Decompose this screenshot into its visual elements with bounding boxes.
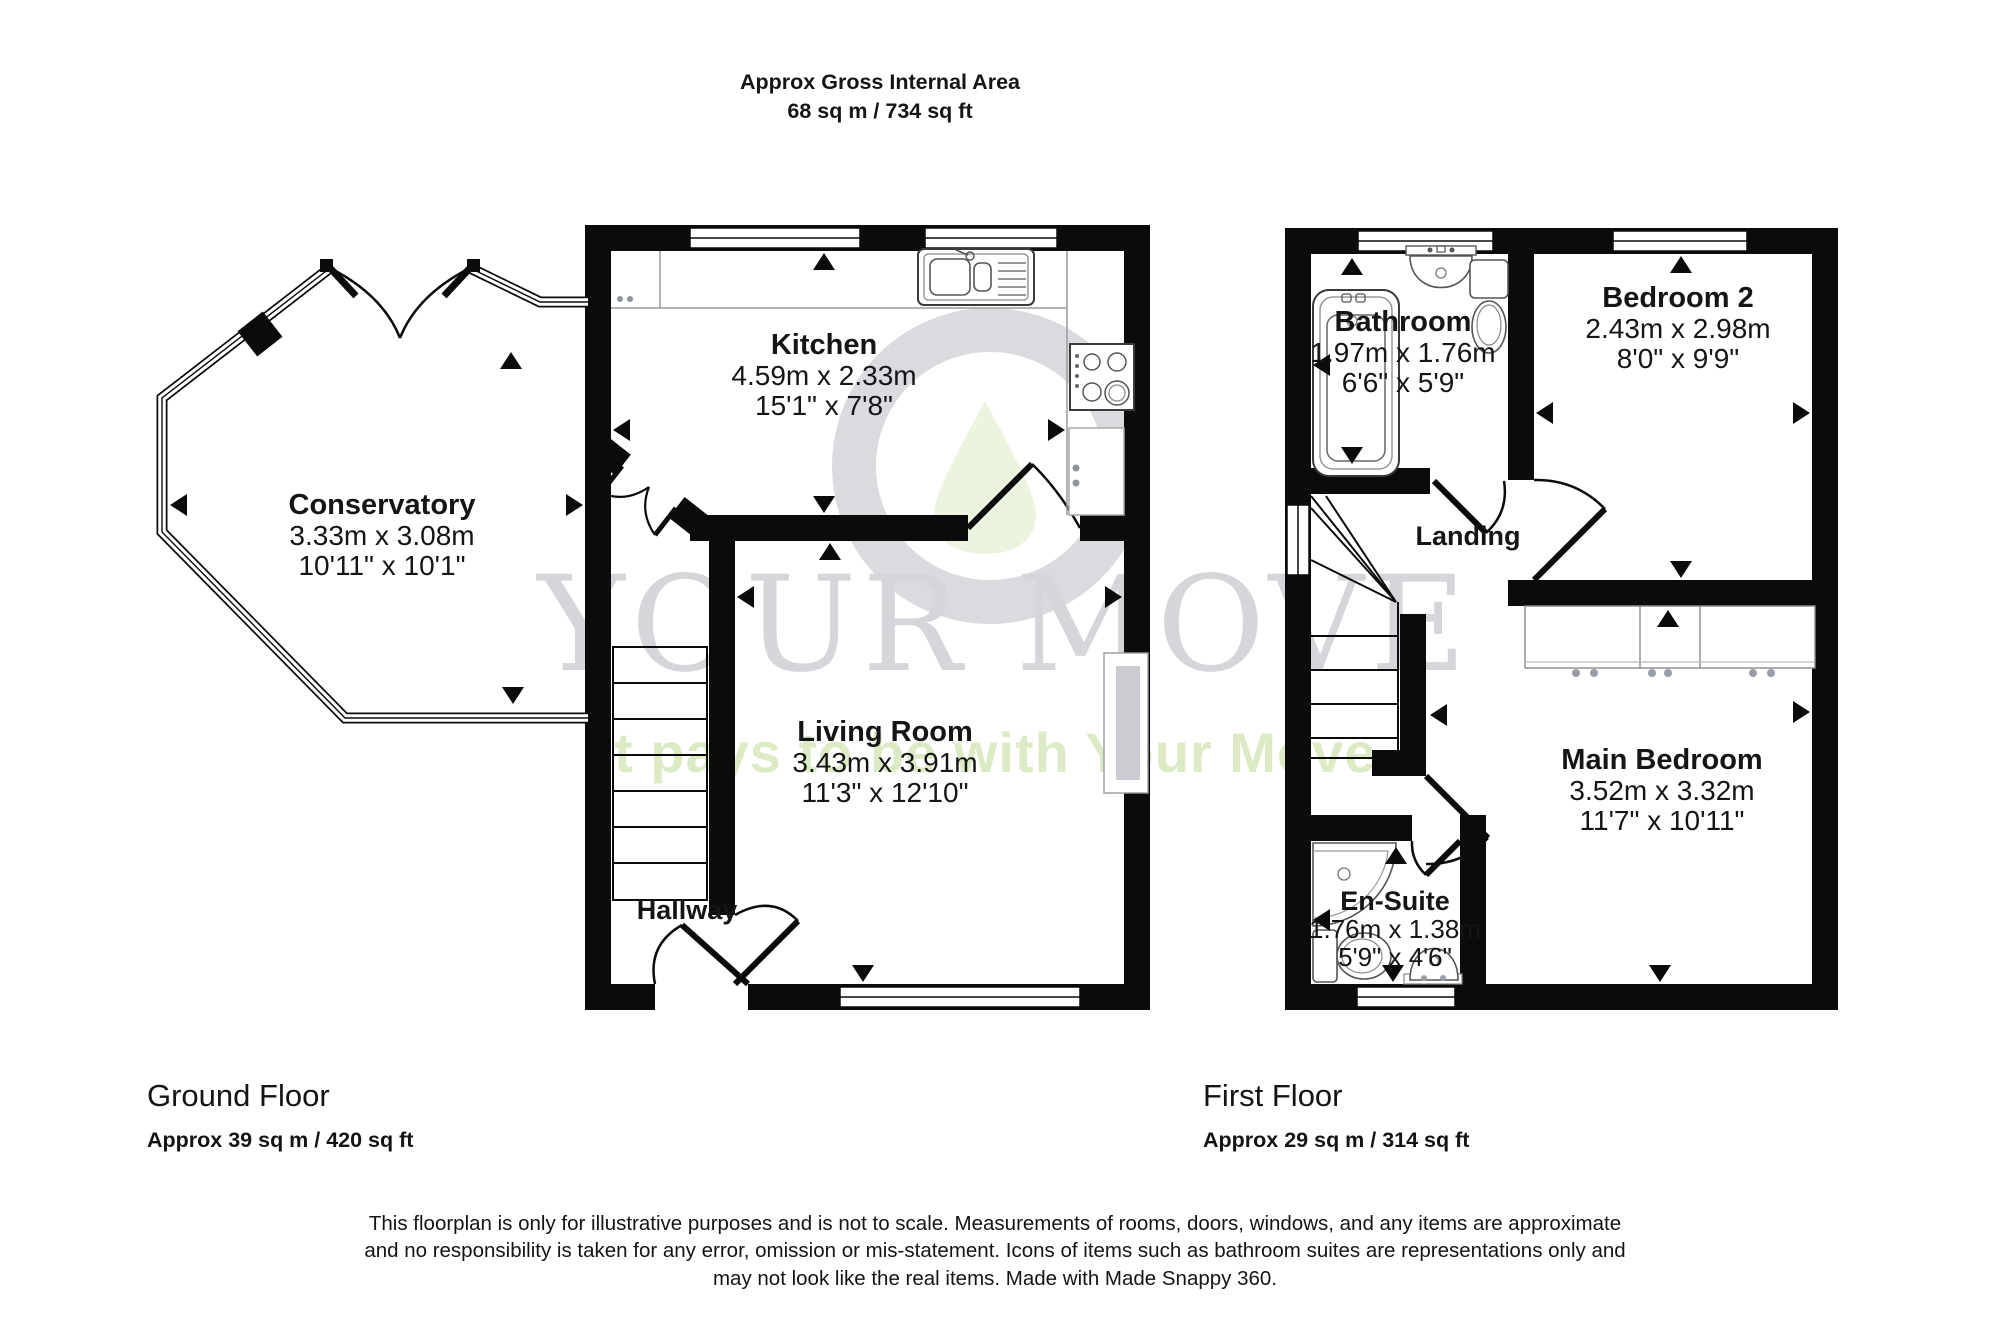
french-doors-icon — [330, 268, 470, 338]
page-title: Approx Gross Internal Area — [740, 68, 1020, 97]
room-label-kitchen: Kitchen 4.59m x 2.33m 15'1" x 7'8" — [731, 330, 916, 421]
bedroom2-door-icon — [1534, 480, 1605, 580]
room-label-bathroom: Bathroom 1.97m x 1.76m 6'6" x 5'9" — [1310, 307, 1495, 398]
room-label-living-room: Living Room 3.43m x 3.91m 11'3" x 12'10" — [792, 717, 977, 808]
gross-internal-area: 68 sq m / 734 sq ft — [740, 97, 1020, 126]
staircase-first — [1311, 496, 1398, 758]
ensuite-door-icon — [1412, 841, 1460, 875]
front-door-icon — [654, 925, 748, 984]
room-label-landing: Landing — [1416, 522, 1521, 551]
kitchen-sink-icon — [918, 249, 1034, 305]
room-label-hallway: Hallway — [637, 896, 738, 925]
kitchen-door-icon — [968, 464, 1080, 528]
disclaimer-line3: may not look like the real items. Made w… — [235, 1265, 1755, 1292]
disclaimer-line1: This floorplan is only for illustrative … — [235, 1210, 1755, 1237]
room-label-bedroom2: Bedroom 2 2.43m x 2.98m 8'0" x 9'9" — [1585, 283, 1770, 374]
room-label-conservatory: Conservatory 3.33m x 3.08m 10'11" x 10'1… — [289, 490, 476, 581]
floorplan-page: YOUR MOVE It pays to be with Your Move — [0, 0, 2000, 1328]
ground-floor-title: Ground Floor — [147, 1078, 330, 1114]
room-label-ensuite: En-Suite 1.76m x 1.38m 5'9" x 4'6" — [1309, 887, 1481, 972]
first-floor-area: Approx 29 sq m / 314 sq ft — [1203, 1128, 1469, 1153]
ground-floor-plan — [162, 225, 1150, 1010]
disclaimer-line2: and no responsibility is taken for any e… — [235, 1237, 1755, 1264]
hallway-living-door-icon — [735, 906, 798, 984]
bathroom-sink-icon — [1406, 246, 1476, 288]
living-room-unit — [1104, 653, 1148, 793]
ground-arrows — [170, 253, 1122, 982]
staircase-ground — [613, 647, 707, 900]
hob-icon — [1070, 344, 1134, 410]
disclaimer: This floorplan is only for illustrative … — [235, 1210, 1755, 1292]
first-floor-title: First Floor — [1203, 1078, 1343, 1114]
header: Approx Gross Internal Area 68 sq m / 734… — [740, 68, 1020, 126]
room-label-main-bedroom: Main Bedroom 3.52m x 3.32m 11'7" x 10'11… — [1561, 745, 1762, 836]
ground-floor-area: Approx 39 sq m / 420 sq ft — [147, 1128, 413, 1153]
